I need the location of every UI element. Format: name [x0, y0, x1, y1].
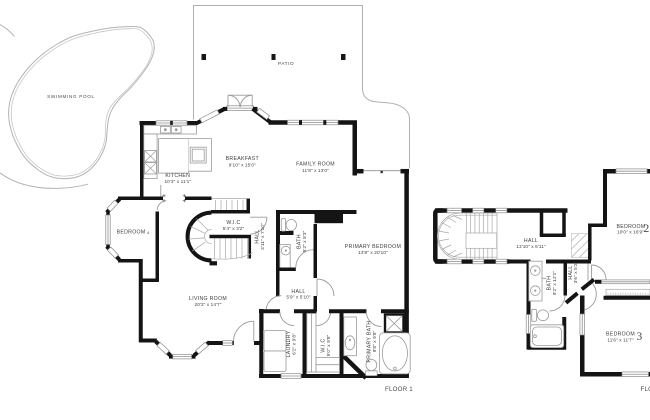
- svg-text:FLOOR 1: FLOOR 1: [385, 386, 413, 393]
- svg-text:13'8" x 20'10": 13'8" x 20'10": [358, 250, 388, 255]
- svg-text:BEDROOM 4: BEDROOM 4: [117, 229, 150, 235]
- svg-text:FAMILY ROOM: FAMILY ROOM: [296, 162, 335, 168]
- svg-text:10'0" x 16'9": 10'0" x 16'9": [617, 230, 644, 235]
- svg-text:11'6" x 11'7": 11'6" x 11'7": [607, 337, 634, 342]
- svg-text:5'9" x 5'10": 5'9" x 5'10": [286, 295, 311, 300]
- svg-text:20'2" x 14'7": 20'2" x 14'7": [194, 302, 221, 307]
- svg-text:PATIO: PATIO: [278, 61, 294, 67]
- svg-text:LIVING ROOM: LIVING ROOM: [189, 296, 227, 302]
- svg-text:10'3" x 11'1": 10'3" x 11'1": [164, 179, 191, 184]
- svg-text:FLOOR 2: FLOOR 2: [641, 386, 650, 393]
- svg-text:3: 3: [637, 331, 643, 343]
- svg-text:9'8" x 9'8": 9'8" x 9'8": [372, 330, 377, 352]
- svg-text:11'8" x 13'0": 11'8" x 13'0": [302, 168, 329, 173]
- svg-text:13'10" x 6'11": 13'10" x 6'11": [516, 244, 546, 249]
- svg-text:2: 2: [644, 223, 650, 235]
- svg-text:SWIMMING POOL: SWIMMING POOL: [47, 94, 95, 99]
- svg-text:PRIMARY BEDROOM: PRIMARY BEDROOM: [345, 244, 401, 250]
- svg-text:KITCHEN: KITCHEN: [165, 173, 190, 179]
- svg-text:3'6" x 5'2": 3'6" x 5'2": [573, 261, 578, 283]
- svg-text:9'2" x 12'1": 9'2" x 12'1": [552, 271, 557, 296]
- svg-text:5'2" x 8'3": 5'2" x 8'3": [302, 230, 307, 252]
- svg-text:3'11" x 7'10": 3'11" x 7'10": [260, 223, 265, 250]
- svg-text:9'10" x 15'0": 9'10" x 15'0": [229, 162, 256, 167]
- svg-text:5'4" x 3'2": 5'4" x 3'2": [223, 226, 245, 231]
- svg-text:5'0" x 9'8": 5'0" x 9'8": [326, 334, 331, 356]
- svg-text:BREAKFAST: BREAKFAST: [226, 156, 260, 162]
- svg-text:6'2" x 9'8": 6'2" x 9'8": [291, 333, 296, 355]
